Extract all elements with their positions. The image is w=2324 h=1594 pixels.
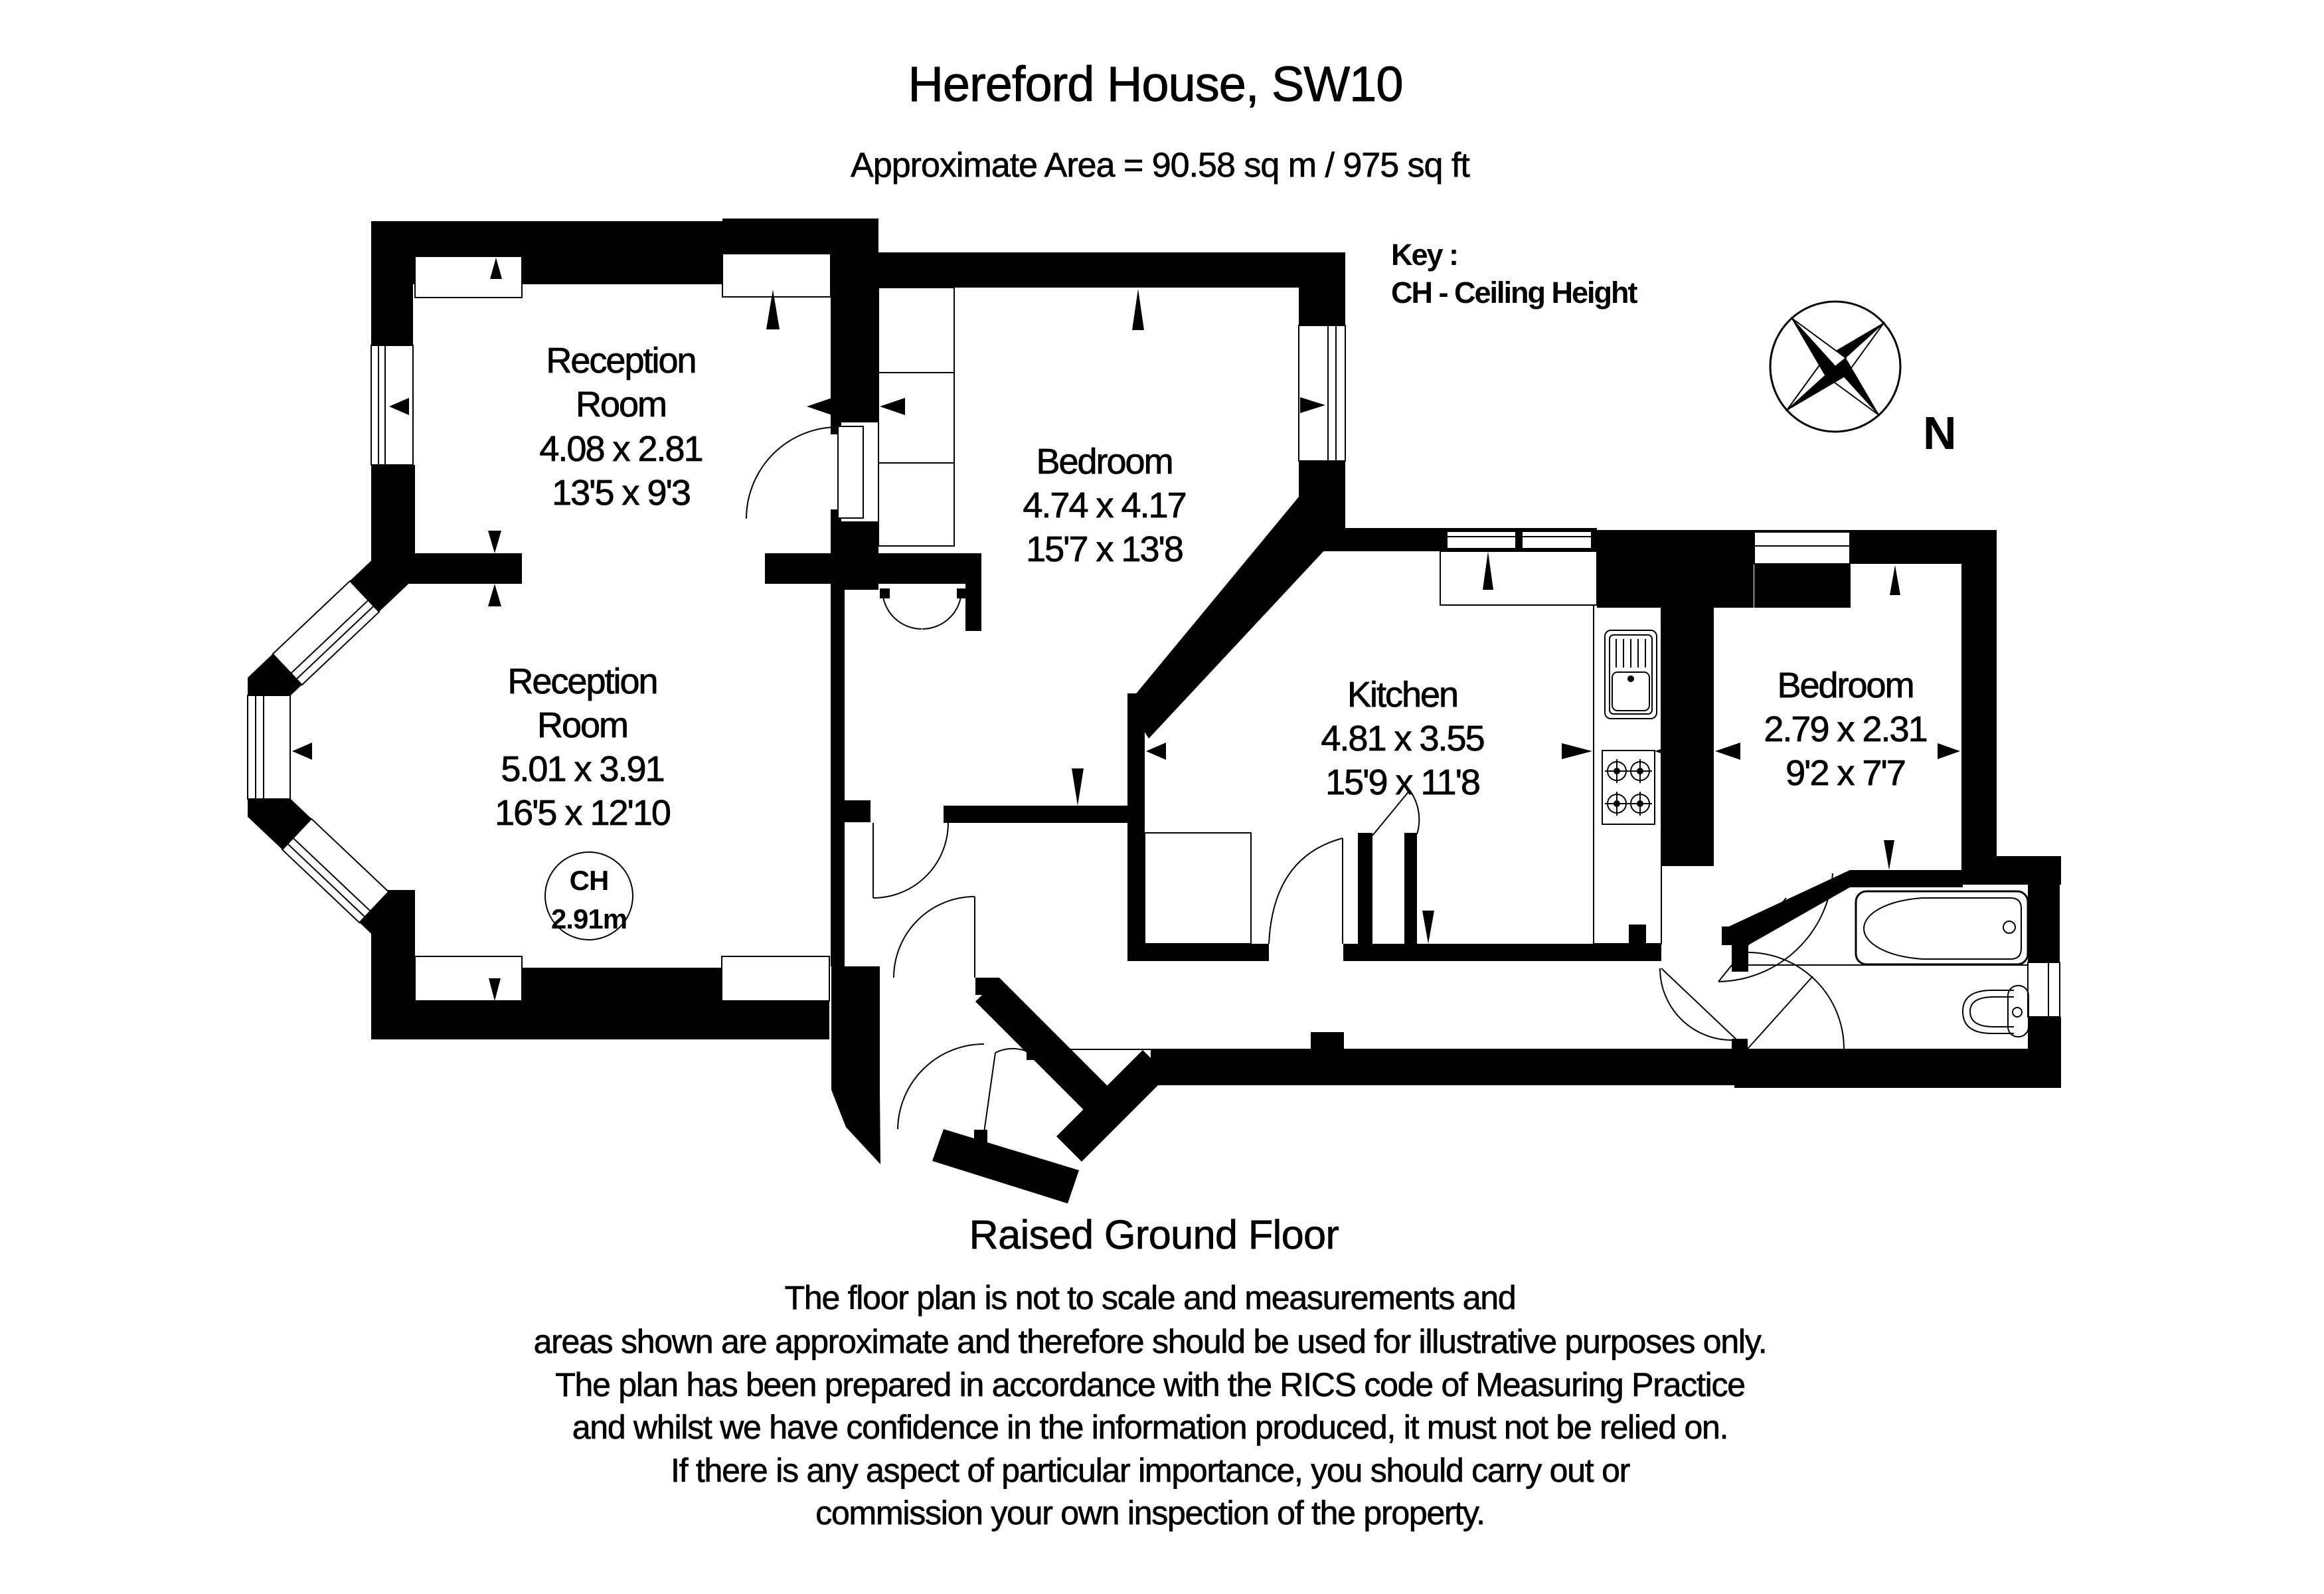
svg-text:5.01 x 3.91: 5.01 x 3.91 xyxy=(501,749,663,789)
svg-text:4.08 x 2.81: 4.08 x 2.81 xyxy=(539,429,702,469)
svg-text:13'5 x 9'3: 13'5 x 9'3 xyxy=(552,473,690,513)
svg-text:Reception: Reception xyxy=(507,662,657,701)
svg-text:Kitchen: Kitchen xyxy=(1347,675,1457,715)
svg-text:The floor plan is not to scale: The floor plan is not to scale and measu… xyxy=(785,1279,1516,1316)
svg-text:N: N xyxy=(1923,407,1957,459)
svg-text:16'5 x 12'10: 16'5 x 12'10 xyxy=(495,793,670,833)
svg-text:2.79 x 2.31: 2.79 x 2.31 xyxy=(1764,709,1926,749)
svg-text:15'9 x 11'8: 15'9 x 11'8 xyxy=(1325,762,1479,802)
svg-text:Approximate Area = 90.58 sq m: Approximate Area = 90.58 sq m / 975 sq f… xyxy=(851,146,1470,185)
svg-text:Bedroom: Bedroom xyxy=(1036,442,1172,482)
svg-text:CH - Ceiling Height: CH - Ceiling Height xyxy=(1391,276,1637,310)
svg-text:areas shown are approximate an: areas shown are approximate and therefor… xyxy=(534,1323,1767,1360)
svg-text:15'7 x 13'8: 15'7 x 13'8 xyxy=(1026,529,1183,569)
svg-text:9'2 x 7'7: 9'2 x 7'7 xyxy=(1785,753,1905,793)
svg-text:Room: Room xyxy=(576,385,666,424)
svg-text:2.91m: 2.91m xyxy=(551,903,627,934)
svg-text:Key :: Key : xyxy=(1391,238,1457,272)
svg-text:Raised Ground Floor: Raised Ground Floor xyxy=(969,1212,1339,1257)
svg-text:Room: Room xyxy=(537,705,627,745)
svg-text:CH: CH xyxy=(570,865,609,896)
svg-text:Hereford House, SW10: Hereford House, SW10 xyxy=(908,56,1402,112)
svg-text:Bedroom: Bedroom xyxy=(1777,665,1913,705)
svg-text:If there is any aspect of part: If there is any aspect of particular imp… xyxy=(671,1452,1630,1489)
svg-text:commission your own inspection: commission your own inspection of the pr… xyxy=(815,1494,1485,1532)
svg-text:4.81 x 3.55: 4.81 x 3.55 xyxy=(1321,719,1483,758)
svg-text:Reception: Reception xyxy=(546,341,695,381)
svg-text:The plan has been prepared in: The plan has been prepared in accordance… xyxy=(555,1366,1745,1403)
svg-text:and whilst we have confidence: and whilst we have confidence in the inf… xyxy=(572,1409,1728,1446)
svg-text:4.74 x 4.17: 4.74 x 4.17 xyxy=(1023,486,1185,525)
